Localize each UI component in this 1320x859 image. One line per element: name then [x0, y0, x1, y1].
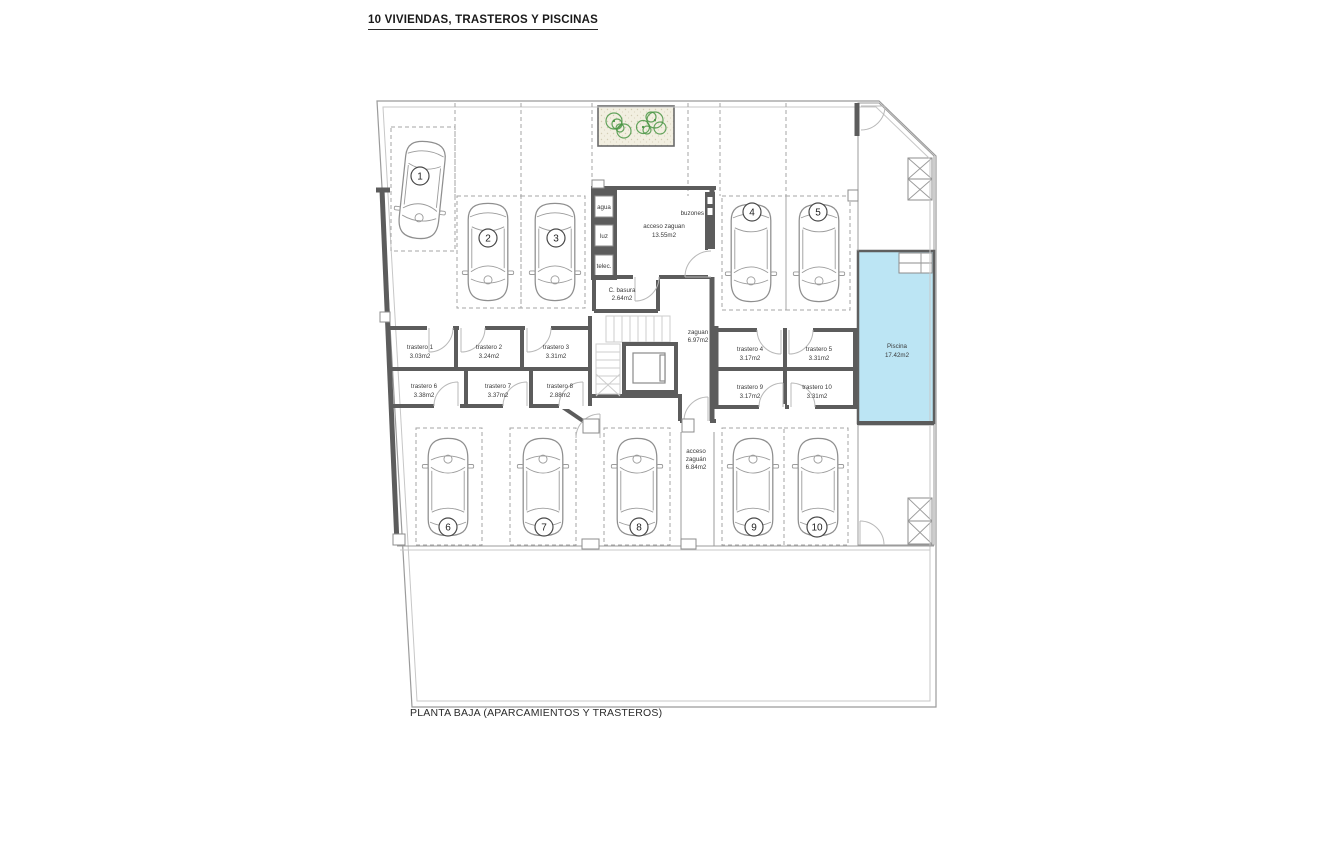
trastero-6: trastero 63.38m2 — [411, 383, 438, 399]
svg-text:4: 4 — [749, 208, 755, 219]
label-buzones: buzones — [681, 210, 704, 217]
cars — [391, 139, 844, 536]
label-acceso-sur: acceso — [686, 448, 706, 455]
label-c-basura-area: 2.64m2 — [612, 295, 633, 302]
trastero-8: trastero 82.88m2 — [547, 383, 574, 399]
svg-text:trastero 10: trastero 10 — [802, 384, 832, 391]
label-acceso-sur-area: 6.84m2 — [686, 464, 707, 471]
label-acceso-zaguan: acceso zaguan — [643, 223, 685, 230]
label-agua: agua — [597, 204, 611, 211]
elevator — [624, 344, 676, 392]
label-acceso-sur-2: zaguán — [686, 456, 707, 463]
parking-number-2: 2 — [479, 229, 497, 247]
label-telec: telec. — [597, 263, 612, 270]
trastero-9: trastero 93.17m2 — [737, 384, 764, 400]
label-piscina-area: 17.42m2 — [885, 352, 910, 359]
svg-text:7: 7 — [541, 523, 547, 534]
svg-text:trastero 1: trastero 1 — [407, 344, 434, 351]
svg-text:trastero 6: trastero 6 — [411, 383, 438, 390]
pool-step — [899, 263, 932, 273]
parking-number-6: 6 — [439, 518, 457, 536]
label-piscina: Piscina — [887, 343, 908, 350]
trastero-3: trastero 33.31m2 — [543, 344, 570, 360]
svg-text:9: 9 — [751, 523, 757, 534]
car-1 — [391, 139, 452, 241]
parking-number-8: 8 — [630, 518, 648, 536]
trastero-2: trastero 23.24m2 — [476, 344, 503, 360]
trastero-10: trastero 103.31m2 — [802, 384, 832, 400]
label-zaguan-area: 6.97m2 — [688, 337, 709, 344]
svg-text:trastero 9: trastero 9 — [737, 384, 764, 391]
svg-text:10: 10 — [811, 523, 823, 534]
svg-text:2: 2 — [485, 234, 491, 245]
elevator-door — [660, 355, 665, 381]
svg-text:3.17m2: 3.17m2 — [740, 355, 761, 362]
trastero-4: trastero 43.17m2 — [737, 346, 764, 362]
svg-text:3.03m2: 3.03m2 — [410, 353, 431, 360]
svg-text:8: 8 — [636, 523, 642, 534]
svg-text:3.17m2: 3.17m2 — [740, 393, 761, 400]
svg-text:3.24m2: 3.24m2 — [479, 353, 500, 360]
trastero-5: trastero 53.31m2 — [806, 346, 833, 362]
parking-number-4: 4 — [743, 203, 761, 221]
car-2 — [462, 203, 513, 300]
svg-text:trastero 5: trastero 5 — [806, 346, 833, 353]
label-luz: luz — [600, 233, 608, 240]
svg-text:1: 1 — [417, 172, 423, 183]
label-zaguan: zaguan — [688, 329, 709, 336]
svg-text:2.88m2: 2.88m2 — [550, 392, 571, 399]
svg-text:3.31m2: 3.31m2 — [807, 393, 828, 400]
page-title: 10 VIVIENDAS, TRASTEROS Y PISCINAS — [368, 14, 598, 30]
svg-text:6: 6 — [445, 523, 451, 534]
floor-plan-svg: 1 2 3 4 5 6 7 8 9 10 agua luz telec. buz… — [370, 95, 945, 715]
label-acceso-zaguan-area: 13.55m2 — [652, 232, 677, 239]
parking-number-10: 10 — [807, 517, 827, 537]
planter-bed — [598, 106, 674, 146]
parking-number-1: 1 — [411, 167, 429, 185]
page: { "title": "10 VIVIENDAS, TRASTEROS Y PI… — [0, 0, 1320, 859]
pool — [858, 251, 934, 423]
svg-text:trastero 2: trastero 2 — [476, 344, 503, 351]
svg-text:3: 3 — [553, 234, 559, 245]
svg-text:5: 5 — [815, 208, 821, 219]
plan-caption: PLANTA BAJA (APARCAMIENTOS Y TRASTEROS) — [410, 707, 662, 719]
parking-number-9: 9 — [745, 518, 763, 536]
svg-text:3.31m2: 3.31m2 — [809, 355, 830, 362]
parking-number-3: 3 — [547, 229, 565, 247]
svg-text:trastero 3: trastero 3 — [543, 344, 570, 351]
parking-number-7: 7 — [535, 518, 553, 536]
svg-text:trastero 8: trastero 8 — [547, 383, 574, 390]
parking-number-5: 5 — [809, 203, 827, 221]
label-c-basura: C. basura — [609, 287, 636, 294]
svg-text:trastero 7: trastero 7 — [485, 383, 512, 390]
svg-text:3.38m2: 3.38m2 — [414, 392, 435, 399]
car-3 — [529, 203, 580, 300]
svg-text:trastero 4: trastero 4 — [737, 346, 764, 353]
pool-step — [899, 253, 932, 263]
svg-text:3.37m2: 3.37m2 — [488, 392, 509, 399]
svg-text:3.31m2: 3.31m2 — [546, 353, 567, 360]
